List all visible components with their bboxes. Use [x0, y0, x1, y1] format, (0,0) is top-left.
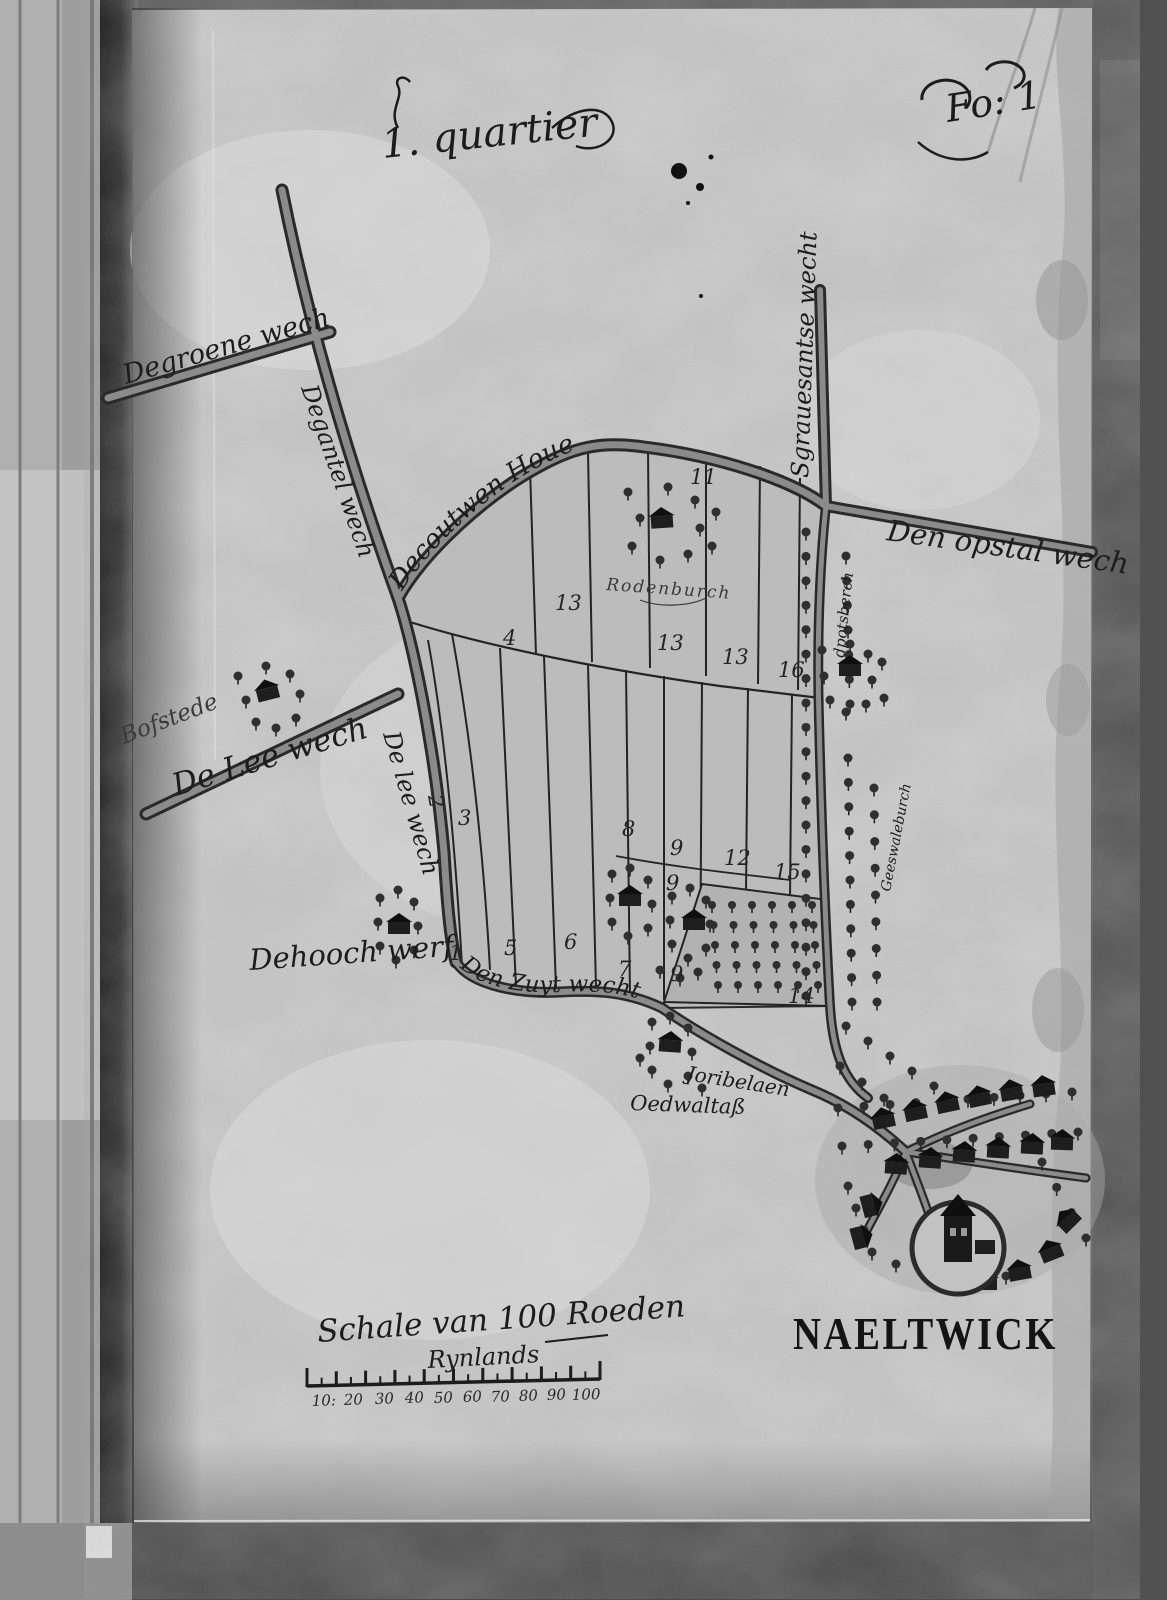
tree-icon [750, 921, 758, 929]
tree-icon [712, 508, 721, 517]
tree-icon [684, 550, 693, 559]
tree-icon [870, 837, 879, 846]
tree-icon [1082, 1234, 1091, 1243]
tree-icon [664, 1080, 673, 1089]
tree-icon [686, 884, 695, 893]
tree-icon [871, 864, 880, 873]
tree-icon [656, 966, 665, 975]
tree-icon [713, 961, 721, 969]
tree-icon [842, 708, 851, 717]
parcel-number: 3 [458, 806, 471, 830]
tree-icon [734, 981, 742, 989]
tree-icon [864, 1140, 873, 1149]
tree-icon [768, 901, 776, 909]
parcel-number: 6 [564, 930, 577, 954]
tree-icon [748, 901, 756, 909]
tree-icon [842, 552, 851, 561]
tree-icon [252, 718, 261, 727]
scale-tick-label: 100 [572, 1385, 602, 1404]
naeltwick-map: 1. quartier Fo: 1 Degroene wech Degantel… [0, 0, 1167, 1600]
tree-icon [374, 918, 383, 927]
tree-icon [646, 1042, 655, 1051]
tree-icon [802, 698, 811, 707]
tree-icon [886, 1052, 895, 1061]
tree-icon [871, 891, 880, 900]
tree-icon [668, 940, 677, 949]
tree-icon [771, 941, 779, 949]
tree-icon [930, 1082, 939, 1091]
town-name: NAELTWICK [793, 1308, 1058, 1359]
tree-icon [731, 941, 739, 949]
tree-icon [624, 488, 633, 497]
tree-icon [868, 676, 877, 685]
scale-tick-label: 60 [463, 1387, 483, 1406]
scale-tick-label: 90 [547, 1385, 567, 1404]
tree-icon [666, 1012, 675, 1021]
tree-icon [890, 1138, 899, 1147]
tree-icon [864, 650, 873, 659]
tree-icon [788, 901, 796, 909]
tree-icon [790, 921, 798, 929]
tree-icon [916, 1137, 925, 1146]
tree-icon [870, 810, 879, 819]
tree-icon [648, 900, 657, 909]
tree-icon [628, 542, 637, 551]
scale-tick-label: 70 [491, 1387, 511, 1406]
tree-icon [847, 973, 856, 982]
tree-icon [802, 552, 811, 561]
tree-icon [802, 747, 811, 756]
parcel-number: 9 [670, 836, 683, 860]
tree-icon [688, 1048, 697, 1057]
scale-tick-label: 40 [404, 1388, 425, 1407]
tree-icon [802, 772, 811, 781]
parcel-number: 5 [504, 936, 517, 960]
tree-icon [1052, 1183, 1061, 1192]
tree-icon [793, 961, 801, 969]
tree-icon [845, 851, 854, 860]
tree-icon [811, 941, 819, 949]
label-oedwal: Oedwaltaß [630, 1091, 746, 1119]
tree-icon [844, 802, 853, 811]
tree-icon [860, 1102, 869, 1111]
tree-icon [636, 514, 645, 523]
tree-icon [1038, 1158, 1047, 1167]
tree-icon [969, 1134, 978, 1143]
tree-icon [826, 696, 835, 705]
tree-icon [871, 917, 880, 926]
tree-icon [648, 1066, 657, 1075]
tree-icon [862, 700, 871, 709]
parcel-number: 9 [670, 962, 683, 986]
tree-icon [864, 1037, 873, 1046]
parcel-number: 4 [502, 626, 516, 650]
tree-icon [908, 1067, 917, 1076]
tree-icon [834, 1104, 843, 1113]
tree-icon [711, 941, 719, 949]
tree-icon [818, 646, 827, 655]
tree-icon [844, 1182, 853, 1191]
tree-icon [873, 998, 882, 1007]
scale-tick-label: 30 [375, 1389, 395, 1408]
tree-icon [802, 821, 811, 830]
tree-icon [880, 1094, 889, 1103]
tree-icon [846, 924, 855, 933]
tree-icon [242, 696, 251, 705]
tree-icon [846, 900, 855, 909]
parcel-number: 16 [778, 658, 805, 682]
tree-icon [410, 898, 419, 907]
tree-icon [666, 916, 675, 925]
tree-icon [684, 954, 693, 963]
tree-icon [878, 658, 887, 667]
parcel-number: 8 [622, 817, 635, 841]
scale-tick-label: 10: [312, 1391, 337, 1410]
tree-icon [691, 496, 700, 505]
parcel-number: 13 [657, 631, 684, 655]
tree-icon [292, 714, 301, 723]
tree-icon [802, 869, 811, 878]
tree-icon [836, 1062, 845, 1071]
scale-tick-label: 50 [434, 1388, 454, 1407]
tree-icon [808, 901, 816, 909]
tree-icon [942, 1135, 951, 1144]
tree-icon [892, 1260, 901, 1269]
tree-icon [802, 845, 811, 854]
tree-icon [872, 971, 881, 980]
tree-icon [880, 694, 889, 703]
tree-icon [802, 723, 811, 732]
tree-icon [754, 981, 762, 989]
tree-icon [770, 921, 778, 929]
parcel-number: 13 [555, 591, 582, 615]
tree-icon [414, 922, 423, 931]
scale-tick-label: 20 [343, 1390, 364, 1409]
tree-icon [802, 943, 811, 952]
tree-icon [664, 483, 673, 492]
parcel-number: 15 [774, 860, 801, 884]
scanned-map-photo: 1. quartier Fo: 1 Degroene wech Degantel… [0, 0, 1167, 1600]
tree-icon [1074, 1128, 1083, 1137]
tree-icon [1068, 1088, 1077, 1097]
tree-icon [802, 918, 811, 927]
tree-icon [802, 601, 811, 610]
tree-icon [852, 1204, 861, 1213]
parcel-number: 9 [666, 871, 679, 895]
tree-icon [813, 961, 821, 969]
tree-icon [820, 672, 829, 681]
tree-icon [606, 894, 615, 903]
tree-icon [842, 1022, 851, 1031]
tree-icon [730, 921, 738, 929]
tree-icon [394, 886, 403, 895]
tree-icon [710, 921, 718, 929]
tree-icon [844, 778, 853, 787]
tree-icon [846, 700, 855, 709]
tree-icon [802, 796, 811, 805]
tree-icon [848, 998, 857, 1007]
parcel-number: 11 [690, 465, 717, 489]
tree-icon [858, 1078, 867, 1087]
tree-icon [802, 576, 811, 585]
tree-icon [753, 961, 761, 969]
tree-icon [714, 981, 722, 989]
tree-icon [728, 901, 736, 909]
parcel-number: 1 [449, 941, 462, 965]
tree-icon [286, 670, 295, 679]
tree-icon [870, 784, 879, 793]
tree-icon [838, 1142, 847, 1151]
tree-icon [845, 827, 854, 836]
tree-icon [262, 662, 271, 671]
tree-icon [608, 870, 617, 879]
tree-icon [802, 967, 811, 976]
tree-icon [696, 524, 705, 533]
tree-icon [791, 941, 799, 949]
tree-icon [733, 961, 741, 969]
tree-icon [272, 724, 281, 733]
scale-tick-label: 80 [519, 1386, 539, 1405]
tree-icon [802, 894, 811, 903]
tree-icon [644, 924, 653, 933]
tree-icon [773, 961, 781, 969]
tree-icon [296, 690, 305, 699]
tree-icon [234, 672, 243, 681]
tree-icon [845, 675, 854, 684]
tree-icon [708, 901, 716, 909]
tree-icon [872, 944, 881, 953]
tree-icon [626, 864, 635, 873]
tree-icon [846, 876, 855, 885]
tree-icon [802, 625, 811, 634]
tree-icon [847, 949, 856, 958]
parcel-number: 13 [722, 645, 749, 669]
tree-icon [774, 981, 782, 989]
tree-icon [814, 981, 822, 989]
tree-icon [684, 1024, 693, 1033]
tree-icon [648, 1018, 657, 1027]
parcel-number: 12 [724, 846, 751, 870]
tree-icon [376, 894, 385, 903]
tree-icon [636, 1054, 645, 1063]
tree-icon [644, 876, 653, 885]
tree-icon [624, 932, 633, 941]
tree-icon [694, 968, 703, 977]
tree-icon [708, 542, 717, 551]
parcel-number: 7 [618, 957, 632, 981]
tree-icon [802, 528, 811, 537]
tree-icon [702, 944, 711, 953]
tree-icon [810, 921, 818, 929]
tree-icon [751, 941, 759, 949]
tree-icon [868, 1248, 877, 1257]
tree-icon [608, 918, 617, 927]
parcel-number: 14 [788, 984, 815, 1008]
tree-icon [656, 556, 665, 565]
tree-icon [844, 754, 853, 763]
